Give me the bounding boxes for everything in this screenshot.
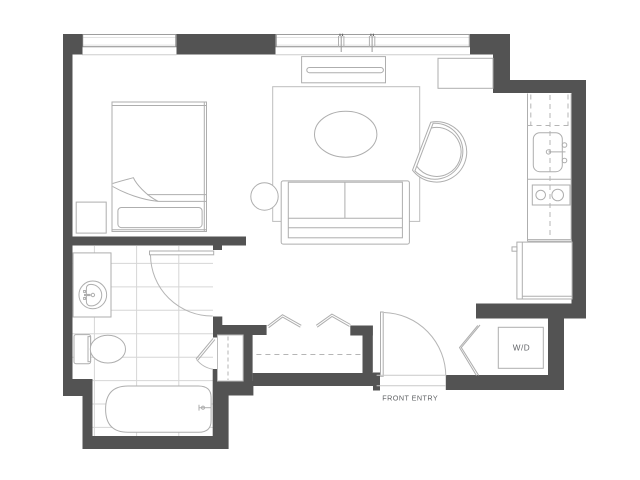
svg-text:W/D: W/D bbox=[513, 344, 530, 353]
svg-text:FRONT ENTRY: FRONT ENTRY bbox=[382, 393, 438, 402]
